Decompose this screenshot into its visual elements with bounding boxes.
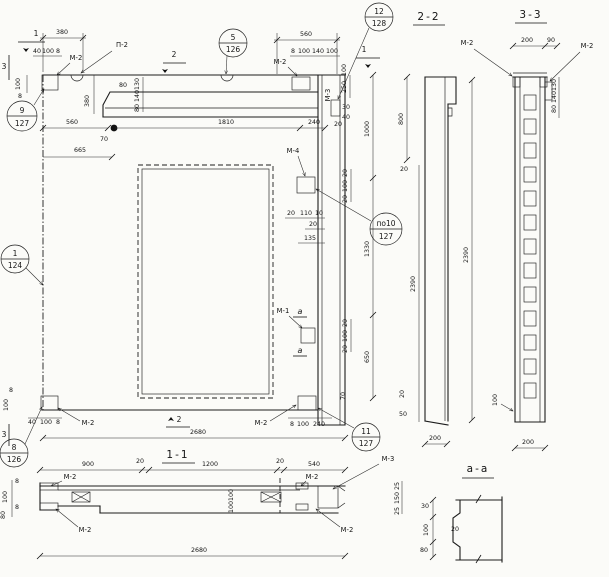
dim-label: 1200	[202, 461, 218, 468]
dim-label: 200	[522, 439, 534, 446]
dim-label: 8	[9, 387, 13, 394]
dim-label: 100	[341, 64, 348, 76]
section-title-3-3: 3-3	[519, 9, 542, 21]
dim-label: 30	[342, 104, 350, 111]
dim-label: 240	[308, 119, 320, 126]
svg-text:127: 127	[359, 439, 374, 448]
dim-label: 560	[300, 31, 312, 38]
dim-label: 135	[304, 235, 316, 242]
section-title-1-1: 1-1	[166, 449, 189, 461]
dim-label: 20	[287, 210, 295, 217]
bubble-5-126: 5126	[219, 29, 247, 74]
dim-label: 8	[56, 48, 60, 55]
marker-m2-label: М-2	[581, 42, 594, 50]
dim-label: 20	[342, 319, 349, 327]
section-a-a: а-а 30 100 80 20	[420, 463, 502, 563]
svg-text:126: 126	[7, 455, 22, 464]
cut-mark-3: 3	[2, 430, 7, 439]
marker-m2-label: М-2	[82, 419, 95, 427]
svg-text:127: 127	[379, 232, 394, 241]
svg-text:124: 124	[8, 261, 23, 270]
dim-label: 80	[420, 547, 428, 554]
dim-label: 665	[74, 147, 86, 154]
marker-m4-label: М-4	[287, 147, 300, 155]
cut-mark-a: а	[298, 307, 303, 316]
dim-label: 20	[342, 345, 349, 353]
dim-label: 100	[298, 48, 310, 55]
cut-mark-1: 1	[34, 29, 39, 38]
dim-label: 90	[547, 37, 555, 44]
dim-label: 560	[66, 119, 78, 126]
dim-label: 100	[2, 491, 9, 503]
dim-label: 20	[334, 121, 342, 128]
section-1-1: 1-1 900 20 1200 20 540 М-2 М-2 М-2 М-2 М…	[0, 449, 402, 559]
dim-label: 80	[119, 82, 127, 89]
dim-label: 25	[394, 482, 401, 490]
dim-label: 250	[341, 81, 348, 93]
embed-plates	[41, 75, 316, 410]
dim-label: 70	[100, 136, 108, 143]
dim-label: 100	[492, 394, 499, 406]
dim-label: 20	[136, 458, 144, 465]
svg-text:127: 127	[15, 119, 30, 128]
marker-m3-label: М-3	[324, 89, 332, 102]
dim-label: 1000	[364, 121, 371, 137]
dim-label: 1810	[218, 119, 234, 126]
marker-m1-label: М-1	[277, 307, 290, 315]
opening-outline-dashed	[138, 165, 273, 398]
top-notch-right	[221, 75, 233, 81]
dim-label: 25	[394, 507, 401, 515]
dim-label: 40	[33, 48, 41, 55]
dim-label: 380	[84, 95, 91, 107]
dim-label: 8	[290, 421, 294, 428]
dim-label: 20	[309, 221, 317, 228]
dim-label: 2390	[410, 276, 417, 292]
bubble-1-124: 1124	[1, 245, 43, 285]
svg-text:5: 5	[231, 33, 236, 42]
dim-label: 100	[228, 489, 235, 501]
marker-m2-label: М-2	[461, 39, 474, 47]
dim-label: 70	[340, 392, 347, 400]
section-title-a-a: а-а	[467, 463, 490, 475]
svg-text:8: 8	[12, 443, 17, 452]
embed-m1	[301, 328, 315, 343]
dim-label: 50	[399, 411, 407, 418]
dim-label: 10	[315, 210, 323, 217]
svg-text:12: 12	[374, 7, 384, 16]
hollow-core-voids	[524, 95, 536, 398]
dim-label: 8	[15, 504, 19, 511]
dim-label: 650	[364, 351, 371, 363]
dim-label: 100	[40, 419, 52, 426]
dim-label: 40	[342, 114, 350, 121]
dim-label: 20	[400, 166, 408, 173]
svg-text:128: 128	[372, 19, 387, 28]
dim-label: 900	[82, 461, 94, 468]
dim-label: 240	[313, 421, 325, 428]
dim-label: 8	[56, 419, 60, 426]
cut-mark-3: 3	[2, 62, 7, 71]
embed-plate	[40, 503, 58, 510]
marker-m2-label: М-2	[274, 58, 287, 66]
marker-m2-label: М-2	[64, 473, 77, 481]
dim-label: 140	[312, 48, 324, 55]
bubble-11-127: 11127	[318, 408, 380, 451]
section-title-2-2: 2-2	[417, 11, 440, 23]
svg-text:11: 11	[361, 427, 371, 436]
dim-label: 100	[423, 524, 430, 536]
dim-label: 200	[521, 37, 533, 44]
bubble-9-127: 9127	[7, 89, 44, 131]
dim-label: 140	[134, 90, 141, 102]
dim-label: 540	[308, 461, 320, 468]
anchor-plate	[261, 492, 281, 502]
cut-mark-2: 2	[177, 415, 182, 424]
dim-label: 20	[451, 526, 459, 533]
dim-label: 1330	[364, 241, 371, 257]
dim-label: 2680	[191, 547, 207, 554]
anchor-plate	[72, 492, 90, 502]
dim-label: 100	[15, 78, 22, 90]
dim-label: 130	[134, 78, 141, 90]
embed-m3-block	[318, 486, 338, 508]
dim-label: 8	[291, 48, 295, 55]
dim-label: 20	[276, 458, 284, 465]
svg-text:9: 9	[20, 106, 25, 115]
dim-label: 20	[342, 195, 349, 203]
marker-m2-label: М-2	[255, 419, 268, 427]
embed-plate	[296, 504, 308, 510]
dims-right: 100 250 М-3 30 40 20 20 100 20 1000 1330…	[277, 64, 376, 401]
dim-label: 20	[399, 390, 406, 398]
dim-label: 20	[342, 169, 349, 177]
embed-m4	[297, 177, 315, 193]
dim-label: 8	[18, 93, 22, 100]
dim-label: 100	[3, 399, 10, 411]
rib-step-detail	[331, 100, 340, 116]
cut-mark-2: 2	[172, 50, 177, 59]
bubble-po10-127: по10127	[316, 189, 402, 245]
dim-label: 30	[421, 503, 429, 510]
top-notch-left	[71, 75, 83, 81]
dim-label: 130	[551, 79, 558, 91]
dims-top: 380 40 100 8 М-2 П-2 2 560 8 100 140 100…	[2, 29, 380, 80]
marker-m2-label: М-2	[70, 54, 83, 62]
dim-label: 80	[134, 104, 141, 112]
dim-label: 150	[394, 492, 401, 504]
dim-label: 100	[297, 421, 309, 428]
marker-p2-label: П-2	[116, 41, 128, 49]
marker-m2-label: М-2	[79, 526, 92, 534]
dim-label: 110	[300, 210, 312, 217]
svg-text:1: 1	[13, 249, 18, 258]
dim-label: 2390	[463, 247, 470, 263]
dim-label: 80	[551, 105, 558, 113]
cut-mark-a: а	[298, 346, 303, 355]
drawing-sheet: 380 40 100 8 М-2 П-2 2 560 8 100 140 100…	[0, 0, 609, 577]
dim-label: 100	[342, 180, 349, 192]
svg-text:по10: по10	[376, 219, 395, 228]
dim-label: 800	[398, 113, 405, 125]
opening-outline	[142, 169, 269, 394]
section-2-2: 2-2 800 20 2390 20 50 200	[398, 11, 456, 447]
marker-m2-label: М-2	[341, 526, 354, 534]
marker-m2-label: М-2	[306, 473, 319, 481]
dim-label: 2680	[190, 429, 206, 436]
dim-label: 100	[42, 48, 54, 55]
panel-shop-drawing: 380 40 100 8 М-2 П-2 2 560 8 100 140 100…	[0, 0, 609, 577]
main-elevation-view	[41, 75, 345, 425]
dim-label: 200	[429, 435, 441, 442]
dim-label: 8	[15, 478, 19, 485]
dim-label: 380	[56, 29, 68, 36]
section-3-3: 3-3 200 90 130 140 80 2390 200 100 М-2 М…	[461, 9, 594, 451]
dim-label: 100	[228, 501, 235, 513]
dim-label: 140	[551, 91, 558, 103]
marker-m3-label: М-3	[382, 455, 395, 463]
svg-text:126: 126	[226, 45, 241, 54]
dim-label: 100	[326, 48, 338, 55]
dim-label: 100	[342, 330, 349, 342]
dim-label: 80	[0, 511, 7, 519]
cut-mark-1: 1	[362, 45, 367, 54]
embed-plate	[513, 77, 520, 87]
